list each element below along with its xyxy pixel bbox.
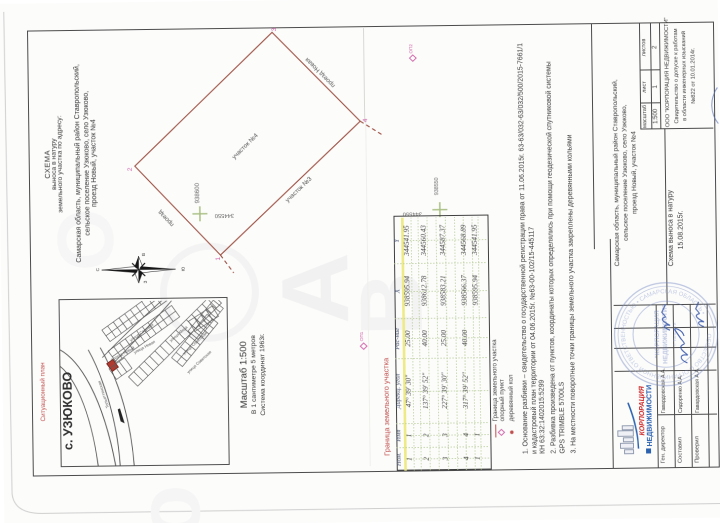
- svg-text:"КОРПОРАЦИЯ: "КОРПОРАЦИЯ: [654, 310, 662, 358]
- svg-text:г. Тольятти: г. Тольятти: [672, 322, 677, 345]
